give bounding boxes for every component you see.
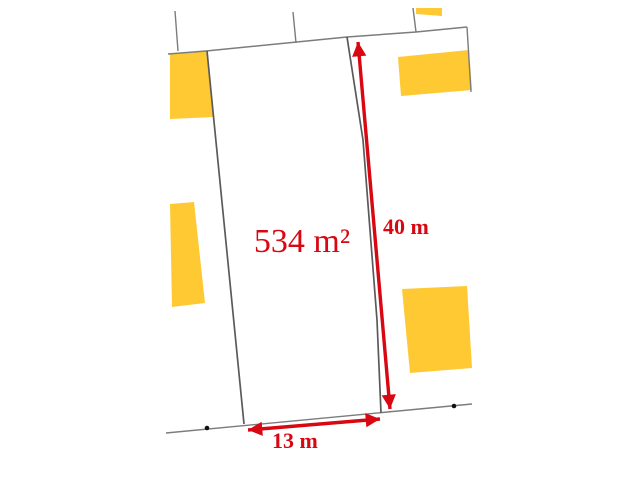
depth-dimension-label: 40 m — [383, 214, 429, 239]
parcel-west-boundary — [207, 51, 244, 424]
plan-svg: 534 m² 40 m 13 m — [0, 0, 640, 480]
frontage-dimension-label: 13 m — [272, 428, 318, 453]
parcel-area-label: 534 m² — [254, 223, 350, 260]
boundary-stub-middle — [293, 12, 296, 43]
boundary-top — [168, 27, 467, 54]
boundary-stub-west — [175, 11, 178, 51]
building-top-right — [398, 50, 472, 96]
plan-canvas: 534 m² 40 m 13 m — [0, 0, 640, 480]
building-top-sliver — [416, 8, 442, 16]
building-mid-left — [170, 202, 205, 307]
boundary-stub-east — [413, 8, 416, 32]
survey-point-east — [452, 404, 457, 409]
survey-point-west — [205, 426, 210, 431]
boundary-bottom-road — [166, 404, 472, 433]
building-bottom-right — [402, 286, 472, 373]
